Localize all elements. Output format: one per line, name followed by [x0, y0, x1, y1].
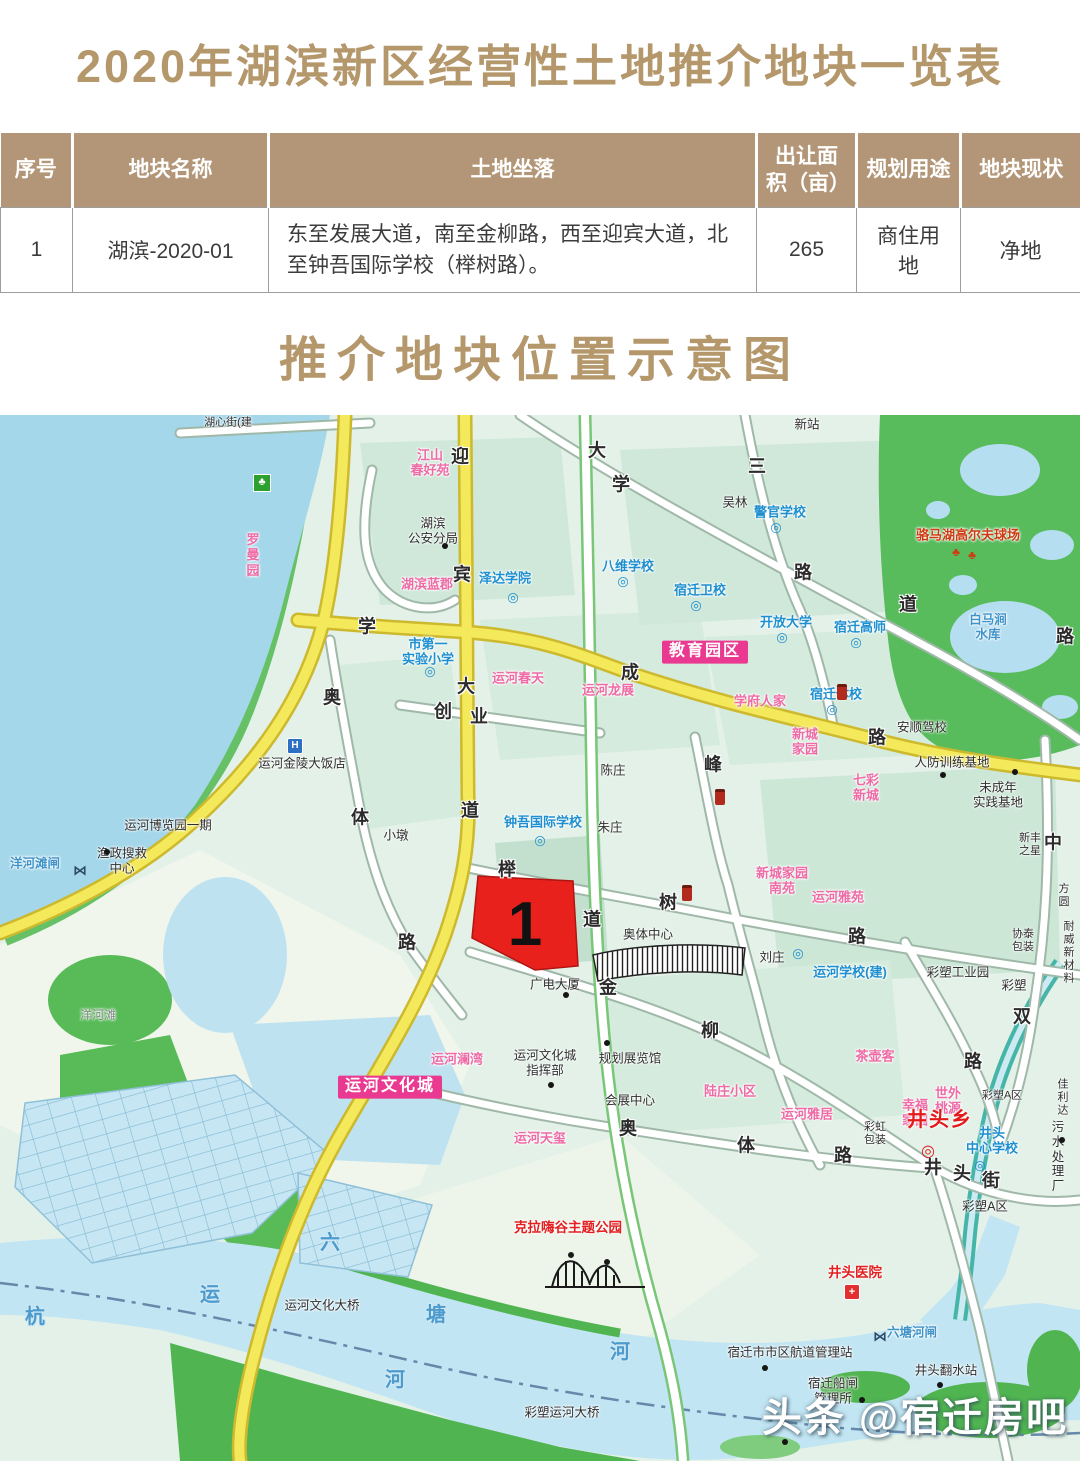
table-cell: 265 [757, 208, 857, 293]
dot-icon [104, 849, 110, 855]
map-label: 警官学校 [754, 504, 806, 519]
map-label: 运 [200, 1284, 220, 1308]
plots-table: 序号地块名称土地坐落出让面积（亩）规划用途地块现状 1湖滨-2020-01东至发… [0, 133, 1080, 293]
map-label: 宿迁高师 [834, 619, 886, 634]
map-label: 六塘河闸 [887, 1326, 937, 1341]
school-icon: ◎ [826, 703, 837, 716]
dot-icon [563, 992, 569, 998]
map-label: 奥 [323, 687, 341, 708]
map-label: 会展中心 [605, 1094, 655, 1109]
school-icon: ◎ [850, 636, 861, 649]
hotel-icon: H [287, 738, 303, 754]
map-label: 金 [599, 977, 617, 998]
map-label: 河 [385, 1369, 405, 1393]
map-label: 彩塑运河大桥 [524, 1406, 599, 1421]
map-label: 湖滨 公安分局 [408, 516, 458, 546]
map-label: 街 [982, 1170, 1000, 1191]
map-label: 刘庄 [759, 951, 784, 966]
header-cell: 序号 [1, 133, 73, 208]
map-label: 峰 [704, 754, 722, 775]
map-label: 中 [1044, 832, 1062, 853]
map-label: 榉 [498, 859, 516, 880]
map-label: 未成年 实践基地 [973, 780, 1023, 810]
map-label: 塘 [426, 1304, 446, 1328]
map-label: 体 [737, 1135, 755, 1156]
table-cell: 商住用地 [857, 208, 961, 293]
map-label: 树 [659, 892, 677, 913]
header-cell: 规划用途 [857, 133, 961, 208]
table-cell: 东至发展大道，南至金柳路，西至迎宾大道，北至钟吾国际学校（榉树路）。 [269, 208, 757, 293]
map-label: 克拉嗨谷主题公园 [514, 1220, 622, 1236]
map-label: 人防训练基地 [914, 756, 989, 771]
lock-icon: ⋈ [873, 1329, 887, 1343]
gas-icon [682, 885, 692, 901]
map-label: 罗 曼 园 [246, 532, 259, 578]
map-label: 运河文化大桥 [284, 1299, 359, 1314]
tree-icon: ♣ [968, 549, 976, 561]
dot-icon [548, 1082, 554, 1088]
park-icon: ♣ [253, 474, 271, 492]
map-label: 路 [398, 932, 416, 953]
dot-icon [762, 1365, 768, 1371]
map-label: 污水 处理厂 [1047, 1120, 1069, 1194]
table-cell: 净地 [961, 208, 1080, 293]
school-icon: ◎ [776, 631, 787, 644]
map-label: 迎 [451, 446, 469, 467]
map-label: 路 [848, 926, 866, 947]
map-title: 推介地块位置示意图 [0, 320, 1080, 390]
table-row: 1湖滨-2020-01东至发展大道，南至金柳路，西至迎宾大道，北至钟吾国际学校（… [1, 208, 1080, 293]
map-label: 路 [868, 727, 886, 748]
map-label: 新城 家园 [792, 727, 818, 758]
map-label: 三 [748, 456, 766, 477]
header-cell: 地块名称 [73, 133, 269, 208]
page-title: 2020年湖滨新区经营性土地推介地块一览表 [0, 30, 1080, 95]
map-label: 学 [612, 474, 630, 495]
dot-icon [940, 772, 946, 778]
map-label: 柳 [701, 1020, 719, 1041]
map-label: 运河澜湾 [431, 1051, 483, 1066]
map-label: 学 [358, 616, 376, 637]
school-icon: ◎ [792, 947, 803, 960]
map-label: 白马涧 水库 [969, 612, 1007, 642]
map-label: 协泰 包装 [1012, 928, 1034, 954]
map-label: 宿迁体校 [810, 686, 862, 701]
map-label: 耐威 新材料 [1064, 921, 1075, 986]
header-cell: 土地坐落 [269, 133, 757, 208]
map-label: 路 [834, 1145, 852, 1166]
map-label: 六 [320, 1232, 340, 1256]
canal-culture-city-badge: 运河文化城 [338, 1076, 442, 1099]
map-label: 业 [470, 706, 488, 727]
school-icon: ◎ [424, 665, 435, 678]
map-label: 钟吾国际学校 [504, 814, 582, 829]
dot-icon [442, 543, 448, 549]
map-label: 宿迁市市区航道管理站 [727, 1346, 852, 1361]
map-label: 吴林 [722, 496, 747, 511]
map-label: 彩虹 包装 [864, 1121, 886, 1147]
map-label: 井头医院 [828, 1265, 882, 1281]
map-label: 新丰 之星 [1019, 832, 1041, 858]
school-icon: ◎ [617, 575, 628, 588]
map-label: 创 [434, 701, 452, 722]
location-map: 1 迎宾大道大学三路道路学成路道榉树路金柳峰奥体路创业奥体路井头街双中路杭运河六… [0, 415, 1080, 1461]
map-label: 大 [457, 676, 475, 697]
map-label: 双 [1013, 1006, 1031, 1027]
map-label: 奥 [619, 1118, 637, 1139]
map-label: 彩塑工业园 [927, 966, 990, 981]
map-label: 方圆 [1056, 883, 1072, 909]
map-label: 新站 [794, 418, 819, 433]
map-label: 七彩 新城 [853, 773, 879, 804]
school-icon: ◎ [974, 1159, 985, 1172]
map-label: 路 [964, 1051, 982, 1072]
map-label: 道 [899, 594, 917, 615]
map-label: 宿迁卫校 [674, 582, 726, 597]
map-label: 大 [588, 440, 606, 461]
map-label: 运河春天 [492, 670, 544, 685]
town-label: 井头乡 [907, 1109, 973, 1133]
map-label: 学府人家 [734, 693, 786, 708]
dot-icon [1059, 1137, 1065, 1143]
map-label: 彩塑 [1001, 979, 1026, 994]
golf-course [879, 415, 1080, 760]
school-icon: ◎ [690, 599, 701, 612]
map-label: 佳利达 [1055, 1079, 1072, 1118]
tree-icon: ♣ [952, 546, 960, 558]
map-label: 陈庄 [600, 764, 625, 779]
map-label: 运河雅居 [781, 1106, 833, 1121]
school-icon: ◎ [770, 521, 781, 534]
map-label: 井 [924, 1157, 942, 1178]
map-label: 洋河滩闸 [10, 857, 60, 872]
map-label: 八维学校 [602, 558, 654, 573]
dot-icon [604, 1040, 610, 1046]
map-label: 骆马湖高尔夫球场 [916, 527, 1020, 542]
map-label: 湖滨蓝郡 [401, 576, 453, 591]
map-label: 道 [461, 800, 479, 821]
watermark: 头条 @宿迁房吧 [762, 1385, 1068, 1443]
map-label: 规划展览馆 [599, 1052, 662, 1067]
map-label: 彩塑A区 [962, 1200, 1008, 1215]
school-icon: ◎ [507, 591, 518, 604]
table-cell: 1 [1, 208, 73, 293]
lock-icon: ⋈ [73, 863, 87, 877]
map-label: 体 [351, 807, 369, 828]
map-label: 陆庄小区 [704, 1083, 756, 1098]
map-label: 泽达学院 [479, 570, 531, 585]
map-label: 朱庄 [597, 821, 622, 836]
map-label: 道 [583, 909, 601, 930]
dot-icon [1012, 769, 1018, 775]
map-label: 运河雅苑 [812, 889, 864, 904]
map-label: 洋河滩 [80, 1008, 116, 1022]
plot-number: 1 [508, 890, 542, 959]
map-label: 运河博览园一期 [124, 819, 212, 834]
table-header-row: 序号地块名称土地坐落出让面积（亩）规划用途地块现状 [1, 133, 1080, 208]
map-label: 河 [610, 1341, 630, 1365]
map-label: 安顺驾校 [897, 721, 947, 736]
gas-icon [837, 684, 847, 700]
map-label: 路 [794, 562, 812, 583]
map-label: 杭 [25, 1306, 45, 1330]
map-label: 运河文化城 指挥部 [514, 1048, 577, 1078]
map-label: 湖心街(建 [204, 417, 252, 430]
map-label: 新城家园 南苑 [756, 866, 808, 897]
map-label: 路 [1056, 626, 1074, 647]
map-label: 运河金陵大饭店 [258, 757, 346, 772]
education-district-badge: 教育园区 [662, 641, 748, 664]
hospital-icon: + [844, 1284, 860, 1300]
map-label: 茶壶客 [855, 1048, 894, 1063]
map-label: 运河学校(建) [813, 964, 887, 979]
map-label: 运河龙展 [582, 682, 634, 697]
map-label: 奥体中心 [623, 928, 673, 943]
flyer-page: 2020年湖滨新区经营性土地推介地块一览表 序号地块名称土地坐落出让面积（亩）规… [0, 0, 1080, 1461]
table-cell: 湖滨-2020-01 [73, 208, 269, 293]
map-label: 江山 春好苑 [410, 448, 449, 479]
map-label: 成 [621, 662, 639, 683]
gas-icon [715, 789, 725, 805]
map-label: 运河天玺 [514, 1130, 566, 1145]
header-cell: 地块现状 [961, 133, 1080, 208]
map-label: 井头翻水站 [915, 1364, 978, 1379]
map-label: 开放大学 [760, 614, 812, 629]
map-label: 彩塑A区 [982, 1090, 1022, 1103]
school-icon: ◎ [534, 834, 545, 847]
map-label: 宾 [453, 564, 471, 585]
map-label: 广电大厦 [530, 978, 580, 993]
map-label: 头 [953, 1163, 971, 1184]
map-graphic: 1 [0, 415, 1080, 1461]
map-label: 井头 中心学校 [966, 1126, 1018, 1157]
map-label: 小墩 [383, 829, 408, 844]
govt-icon: ◎ [921, 1144, 935, 1160]
header-cell: 出让面积（亩） [757, 133, 857, 208]
